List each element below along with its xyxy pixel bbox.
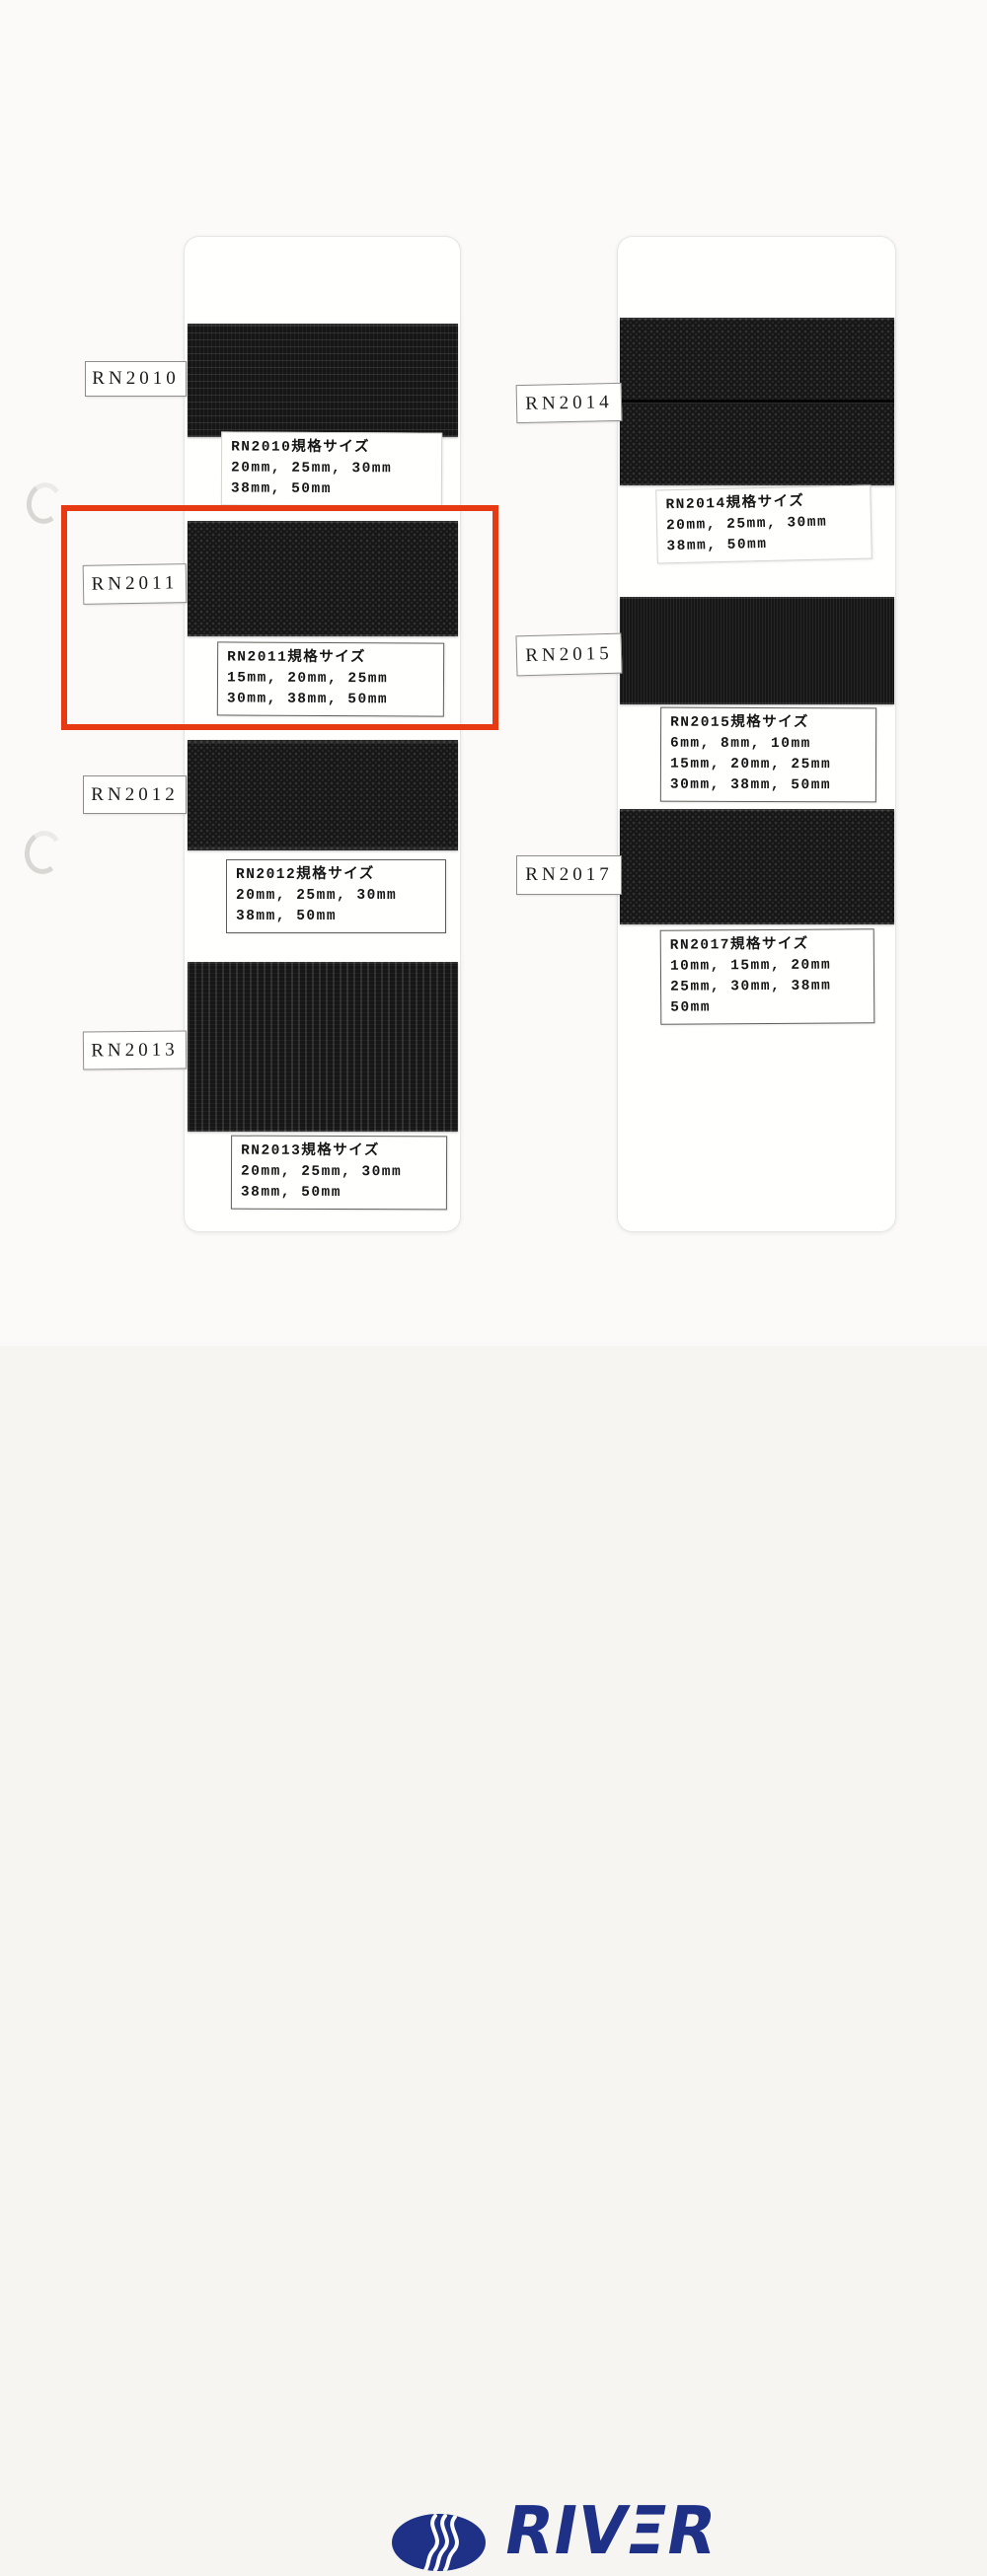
webbing-sample-rn2013 <box>188 962 458 1132</box>
code-label-rn2013: RN2013 <box>83 1030 187 1069</box>
spec-sizes: 20mm, 25mm, 30mm <box>241 1162 437 1184</box>
code-label-rn2010: RN2010 <box>85 361 187 397</box>
code-label-rn2014: RN2014 <box>516 383 623 423</box>
webbing-sample-rn2014 <box>620 318 894 485</box>
catalog-page: RN2010 RN2010規格サイズ 20mm, 25mm, 30mm 38mm… <box>0 0 987 1346</box>
punch-hole-bottom <box>21 828 65 877</box>
webbing-band-divider <box>620 400 894 404</box>
spec-title: RN2015規格サイズ <box>670 713 867 735</box>
spec-label-rn2013: RN2013規格サイズ 20mm, 25mm, 30mm 38mm, 50mm <box>231 1136 447 1211</box>
spec-sizes: 38mm, 50mm <box>666 533 862 558</box>
code-label-rn2017: RN2017 <box>516 855 622 895</box>
spec-label-rn2017: RN2017規格サイズ 10mm, 15mm, 20mm 25mm, 30mm,… <box>660 928 875 1025</box>
logo-text-right: R <box>661 2498 721 2564</box>
webbing-sample-rn2012 <box>188 740 458 850</box>
spec-title: RN2012規格サイズ <box>236 865 436 886</box>
spec-sizes: 20mm, 25mm, 30mm <box>236 886 436 907</box>
spec-title: RN2010規格サイズ <box>231 437 432 459</box>
spec-title: RN2017規格サイズ <box>670 934 865 956</box>
spec-label-rn2010: RN2010規格サイズ 20mm, 25mm, 30mm 38mm, 50mm <box>221 431 442 506</box>
punch-hole-top <box>24 479 66 527</box>
spec-sizes: 50mm <box>670 996 865 1018</box>
spec-sizes: 38mm, 50mm <box>236 907 436 927</box>
spec-sizes: 15mm, 20mm, 25mm <box>670 755 867 776</box>
river-logo-text: RIVΞR <box>499 2498 721 2564</box>
river-logo-mark <box>392 2514 486 2571</box>
river-logo: RIVΞR <box>0 1245 987 1344</box>
code-label-rn2015: RN2015 <box>515 633 622 677</box>
wave-ellipse-icon <box>392 2514 486 2571</box>
spec-sizes: 10mm, 15mm, 20mm <box>670 955 865 977</box>
webbing-sample-rn2015 <box>620 597 894 704</box>
spec-label-rn2015: RN2015規格サイズ 6mm, 8mm, 10mm 15mm, 20mm, 2… <box>660 707 876 803</box>
spec-sizes: 38mm, 50mm <box>231 478 432 500</box>
spec-sizes: 30mm, 38mm, 50mm <box>670 775 867 797</box>
spec-title: RN2013規格サイズ <box>241 1141 437 1163</box>
spec-sizes: 20mm, 25mm, 30mm <box>231 458 432 479</box>
webbing-sample-rn2010 <box>188 324 458 437</box>
spec-label-rn2014: RN2014規格サイズ 20mm, 25mm, 30mm 38mm, 50mm <box>655 485 873 564</box>
webbing-sample-rn2017 <box>620 809 894 924</box>
spec-label-rn2012: RN2012規格サイズ 20mm, 25mm, 30mm 38mm, 50mm <box>226 859 446 933</box>
spec-sizes: 38mm, 50mm <box>241 1183 437 1205</box>
spec-sizes: 6mm, 8mm, 10mm <box>670 734 867 756</box>
code-label-rn2012: RN2012 <box>83 775 187 814</box>
logo-text-left: RIV <box>499 2498 633 2564</box>
highlight-rectangle <box>61 505 498 730</box>
spec-sizes: 25mm, 30mm, 38mm <box>670 976 865 997</box>
